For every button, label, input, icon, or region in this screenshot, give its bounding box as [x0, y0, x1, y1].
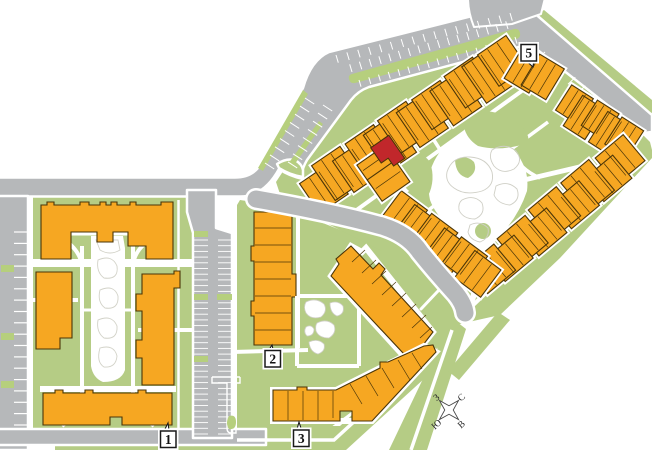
- svg-text:5: 5: [525, 46, 532, 61]
- svg-text:3: 3: [298, 431, 305, 446]
- svg-text:1: 1: [165, 432, 172, 447]
- svg-text:2: 2: [269, 352, 276, 367]
